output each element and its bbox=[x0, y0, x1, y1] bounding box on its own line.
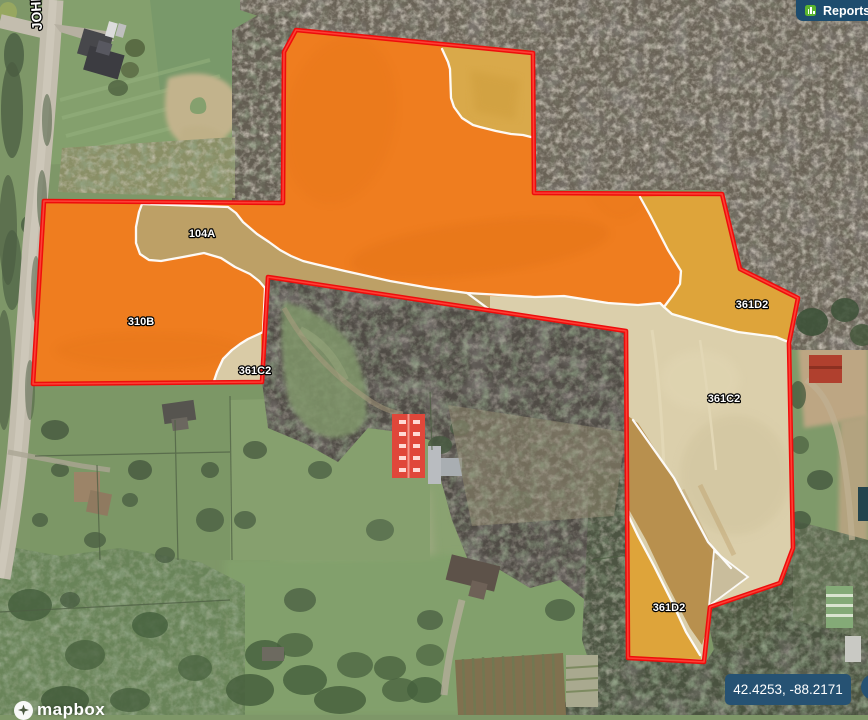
svg-text:310B: 310B bbox=[128, 316, 154, 328]
svg-text:361C2: 361C2 bbox=[239, 365, 271, 377]
svg-text:361D2: 361D2 bbox=[653, 602, 685, 614]
svg-text:361D2: 361D2 bbox=[736, 299, 768, 311]
svg-text:JOHN: JOHN bbox=[27, 0, 45, 31]
svg-text:104A: 104A bbox=[189, 228, 215, 240]
svg-text:361C2: 361C2 bbox=[708, 393, 740, 405]
